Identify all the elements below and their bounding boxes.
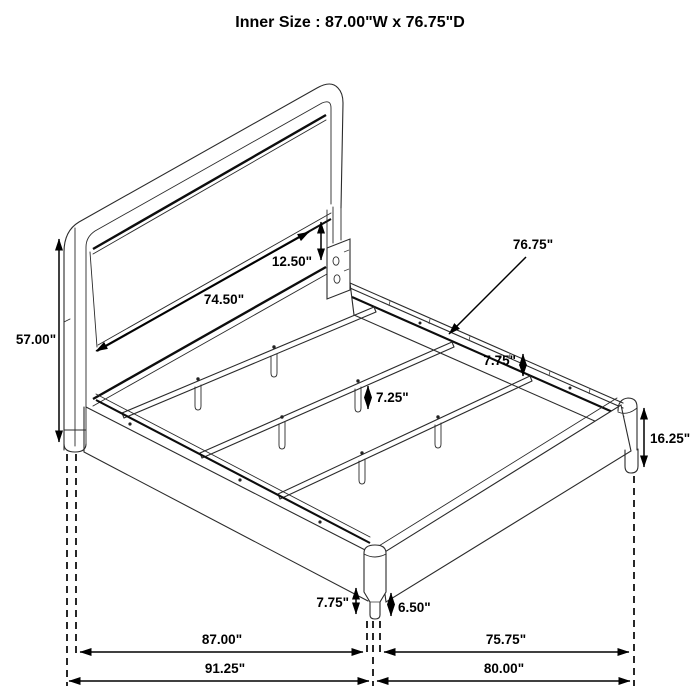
- slat: [200, 342, 454, 458]
- screw-dot: [569, 387, 572, 390]
- dimension-label: 7.75": [316, 595, 349, 610]
- rail-bracket: [327, 239, 350, 299]
- dimension-headboard-height: 57.00": [16, 239, 59, 442]
- dimension-center-leg-height: 7.25": [368, 386, 409, 409]
- near-rail-ledge: [96, 400, 370, 543]
- dimension-label: 76.75": [513, 237, 553, 252]
- dimension-label: 75.75": [486, 632, 526, 647]
- dimension-slat-area-depth: 76.75": [449, 237, 553, 334]
- dimension-inner-depth: 75.75": [384, 632, 629, 652]
- headboard-inner-edge: [86, 102, 331, 444]
- bed-dimension-diagram-page: 57.00" 74.50" 12.50" 76.75" 7.75" 7.25" …: [0, 0, 700, 700]
- slat-leg: [359, 459, 365, 484]
- front-leg-outline: [364, 545, 386, 619]
- slat-leg: [195, 385, 201, 410]
- screw-dot: [196, 377, 199, 380]
- slat: [122, 307, 376, 418]
- dimension-overall-depth: 80.00": [377, 661, 630, 681]
- headboard-top-groove: [93, 115, 326, 249]
- screw-dot: [419, 322, 422, 325]
- headboard-groove-shadow: [93, 120, 326, 254]
- screw-dot: [128, 422, 131, 425]
- dimension-line: [96, 232, 309, 351]
- screw-dot: [272, 345, 275, 348]
- dimension-label: 6.50": [398, 600, 431, 615]
- bed-dimension-diagram: 57.00" 74.50" 12.50" 76.75" 7.75" 7.25" …: [0, 0, 700, 700]
- leader-line: [449, 257, 526, 334]
- screw-dot: [360, 451, 363, 454]
- dimension-label: 7.75": [483, 353, 516, 368]
- panel-bottom-edge: [98, 213, 331, 345]
- near-rail-top-edge: [86, 407, 371, 553]
- dimension-footboard-corner-height: 16.25": [644, 408, 690, 467]
- dimension-label: 12.50": [272, 254, 312, 269]
- front-leg: [364, 545, 386, 619]
- right-post-lines: [327, 207, 341, 248]
- left-post-step: [64, 319, 70, 322]
- dimension-front-leg-lower-height: 6.50": [391, 593, 431, 616]
- dimension-label: 91.25": [205, 661, 245, 676]
- dimension-headboard-inner-width: 74.50": [96, 232, 309, 351]
- near-rail-ledge-top: [96, 394, 370, 537]
- dimension-label: 16.25": [650, 431, 690, 446]
- screw-dot: [436, 415, 439, 418]
- page-title: Inner Size : 87.00"W x 76.75"D: [235, 14, 465, 31]
- far-rail-bottom: [354, 315, 622, 433]
- screw-dot: [238, 478, 241, 481]
- slat-leg: [435, 423, 441, 448]
- screw-dot: [280, 415, 283, 418]
- screw-dot: [318, 520, 321, 523]
- near-rail-bottom-edge: [84, 452, 368, 601]
- slat-leg: [271, 354, 277, 377]
- dimension-label: 74.50": [204, 292, 244, 307]
- dimension-label: 57.00": [16, 332, 56, 347]
- dimension-inner-width: 87.00": [80, 632, 363, 652]
- dimension-label: 7.25": [376, 390, 409, 405]
- panel-left-edge: [90, 252, 97, 347]
- foot-rail: [374, 398, 631, 602]
- dimension-label: 87.00": [202, 632, 242, 647]
- dimension-overall-width: 91.25": [69, 661, 369, 681]
- side-rail-near: [84, 394, 371, 601]
- screw-dot: [356, 379, 359, 382]
- slat-leg: [279, 422, 285, 449]
- dimension-label: 80.00": [484, 661, 524, 676]
